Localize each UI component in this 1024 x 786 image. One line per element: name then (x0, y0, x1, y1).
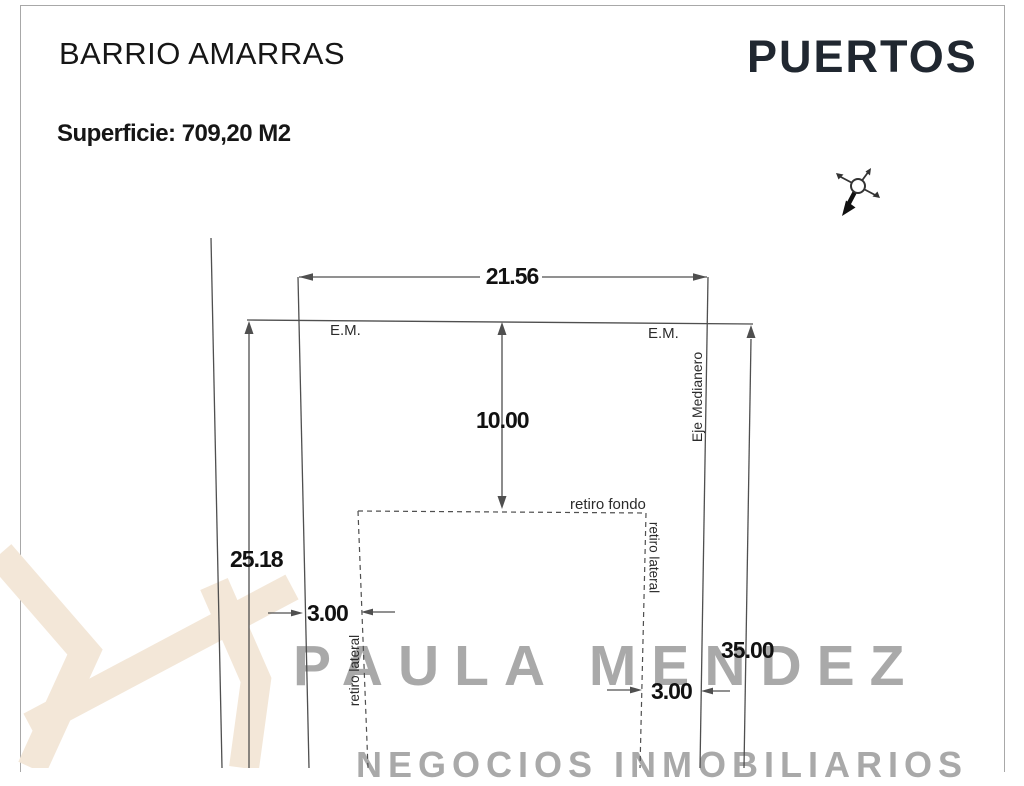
front-boundary-line (247, 320, 753, 324)
label-eje-medianero: Eje Medianero (689, 347, 705, 447)
dim-rear-setback-depth: 10.00 (476, 407, 529, 434)
left-boundary-line (298, 277, 309, 768)
scanned-lot-plan-page: { "header": { "title": "BARRIO AMARRAS",… (0, 0, 1024, 768)
dim-line-right (744, 339, 751, 768)
plot-plan-drawing (0, 0, 1024, 768)
dim-lateral-setback-left: 3.00 (307, 600, 348, 627)
dim-lateral-setback-right: 3.00 (651, 678, 692, 705)
dim-right-side: 35.00 (721, 637, 774, 664)
street-line (211, 238, 222, 768)
label-em-right: E.M. (648, 325, 679, 342)
retiro-lateral-right-line (640, 513, 646, 768)
north-arrow-compass-icon (820, 150, 905, 235)
dim-front-width: 21.56 (481, 263, 543, 290)
label-retiro-lateral-right: retiro lateral (647, 519, 662, 597)
label-retiro-fondo: retiro fondo (570, 496, 646, 513)
label-em-left: E.M. (330, 322, 361, 339)
dim-left-side: 25.18 (230, 546, 283, 573)
label-retiro-lateral-left: retiro lateral (347, 632, 362, 709)
